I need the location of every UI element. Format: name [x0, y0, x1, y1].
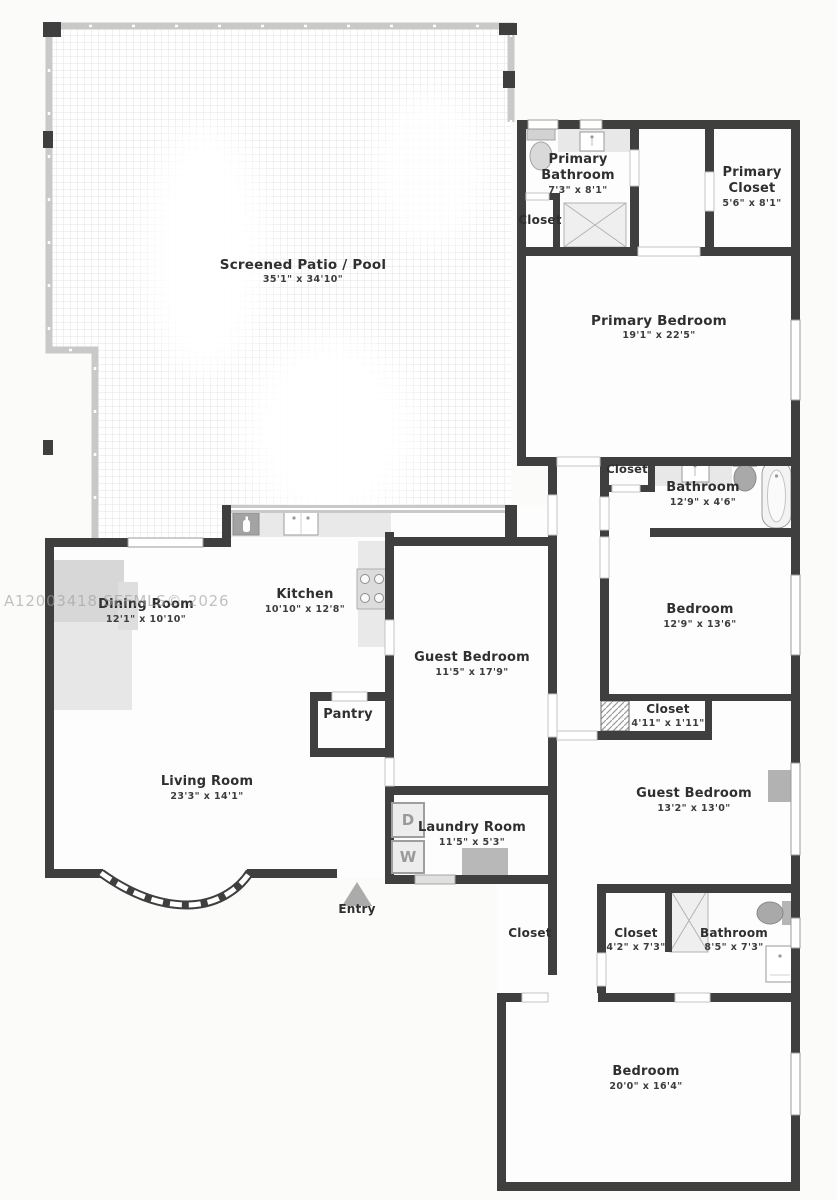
back-door-icon [415, 875, 455, 884]
room-label-screened-patio: Screened Patio / Pool 35'1" x 34'10" [220, 257, 386, 286]
ac-unit-icon [768, 770, 794, 802]
dining-furniture [54, 622, 132, 710]
room-label-laundry-room: Laundry Room 11'5" x 5'3" [418, 820, 526, 848]
room-label-guest-bedroom-east: Guest Bedroom 13'2" x 13'0" [636, 786, 752, 814]
room-label-lower-hall-closet: Closet [508, 926, 551, 941]
floor-plan: A12003418 SEFMLS© 2026 D W Screened Pati… [0, 0, 837, 1200]
room-label-primary-bedroom: Primary Bedroom 19'1" x 22'5" [591, 313, 727, 342]
room-label-primary-closet: Primary Closet 5'6" x 8'1" [716, 165, 788, 209]
room-label-living-room: Living Room 23'3" x 14'1" [161, 774, 253, 802]
toilet-icon [757, 902, 783, 924]
room-label-middle-bedroom: Bedroom 12'9" x 13'6" [663, 602, 736, 630]
sink-icon [766, 946, 794, 982]
room-label-primary-bathroom-closet: Closet [518, 213, 561, 228]
room-label-middle-bedroom-closet: Closet 4'11" x 1'11" [631, 702, 704, 729]
hatched-area [601, 701, 629, 731]
laundry-counter [462, 848, 508, 876]
room-label-lower-closet: Closet 4'2" x 7'3" [606, 926, 665, 953]
room-label-guest-bedroom-center: Guest Bedroom 11'5" x 17'9" [414, 650, 530, 678]
room-label-lower-bedroom: Bedroom 20'0" x 16'4" [609, 1064, 682, 1092]
room-label-entry: Entry [338, 902, 375, 917]
washer-label: W [400, 848, 417, 866]
room-label-kitchen: Kitchen 10'10" x 12'8" [265, 587, 345, 615]
room-label-pantry: Pantry [323, 707, 373, 723]
dryer-label: D [402, 811, 414, 829]
room-label-primary-bathroom: Primary Bathroom 7'3" x 8'1" [532, 152, 624, 196]
toilet-tank-icon [527, 129, 555, 140]
room-label-hall-bathroom: Bathroom 12'9" x 4'6" [666, 480, 740, 508]
room-label-hall-closet: Closet [606, 462, 648, 476]
room-label-lower-bathroom: Bathroom 8'5" x 7'3" [700, 926, 768, 953]
mls-watermark: A12003418 SEFMLS© 2026 [4, 592, 229, 610]
